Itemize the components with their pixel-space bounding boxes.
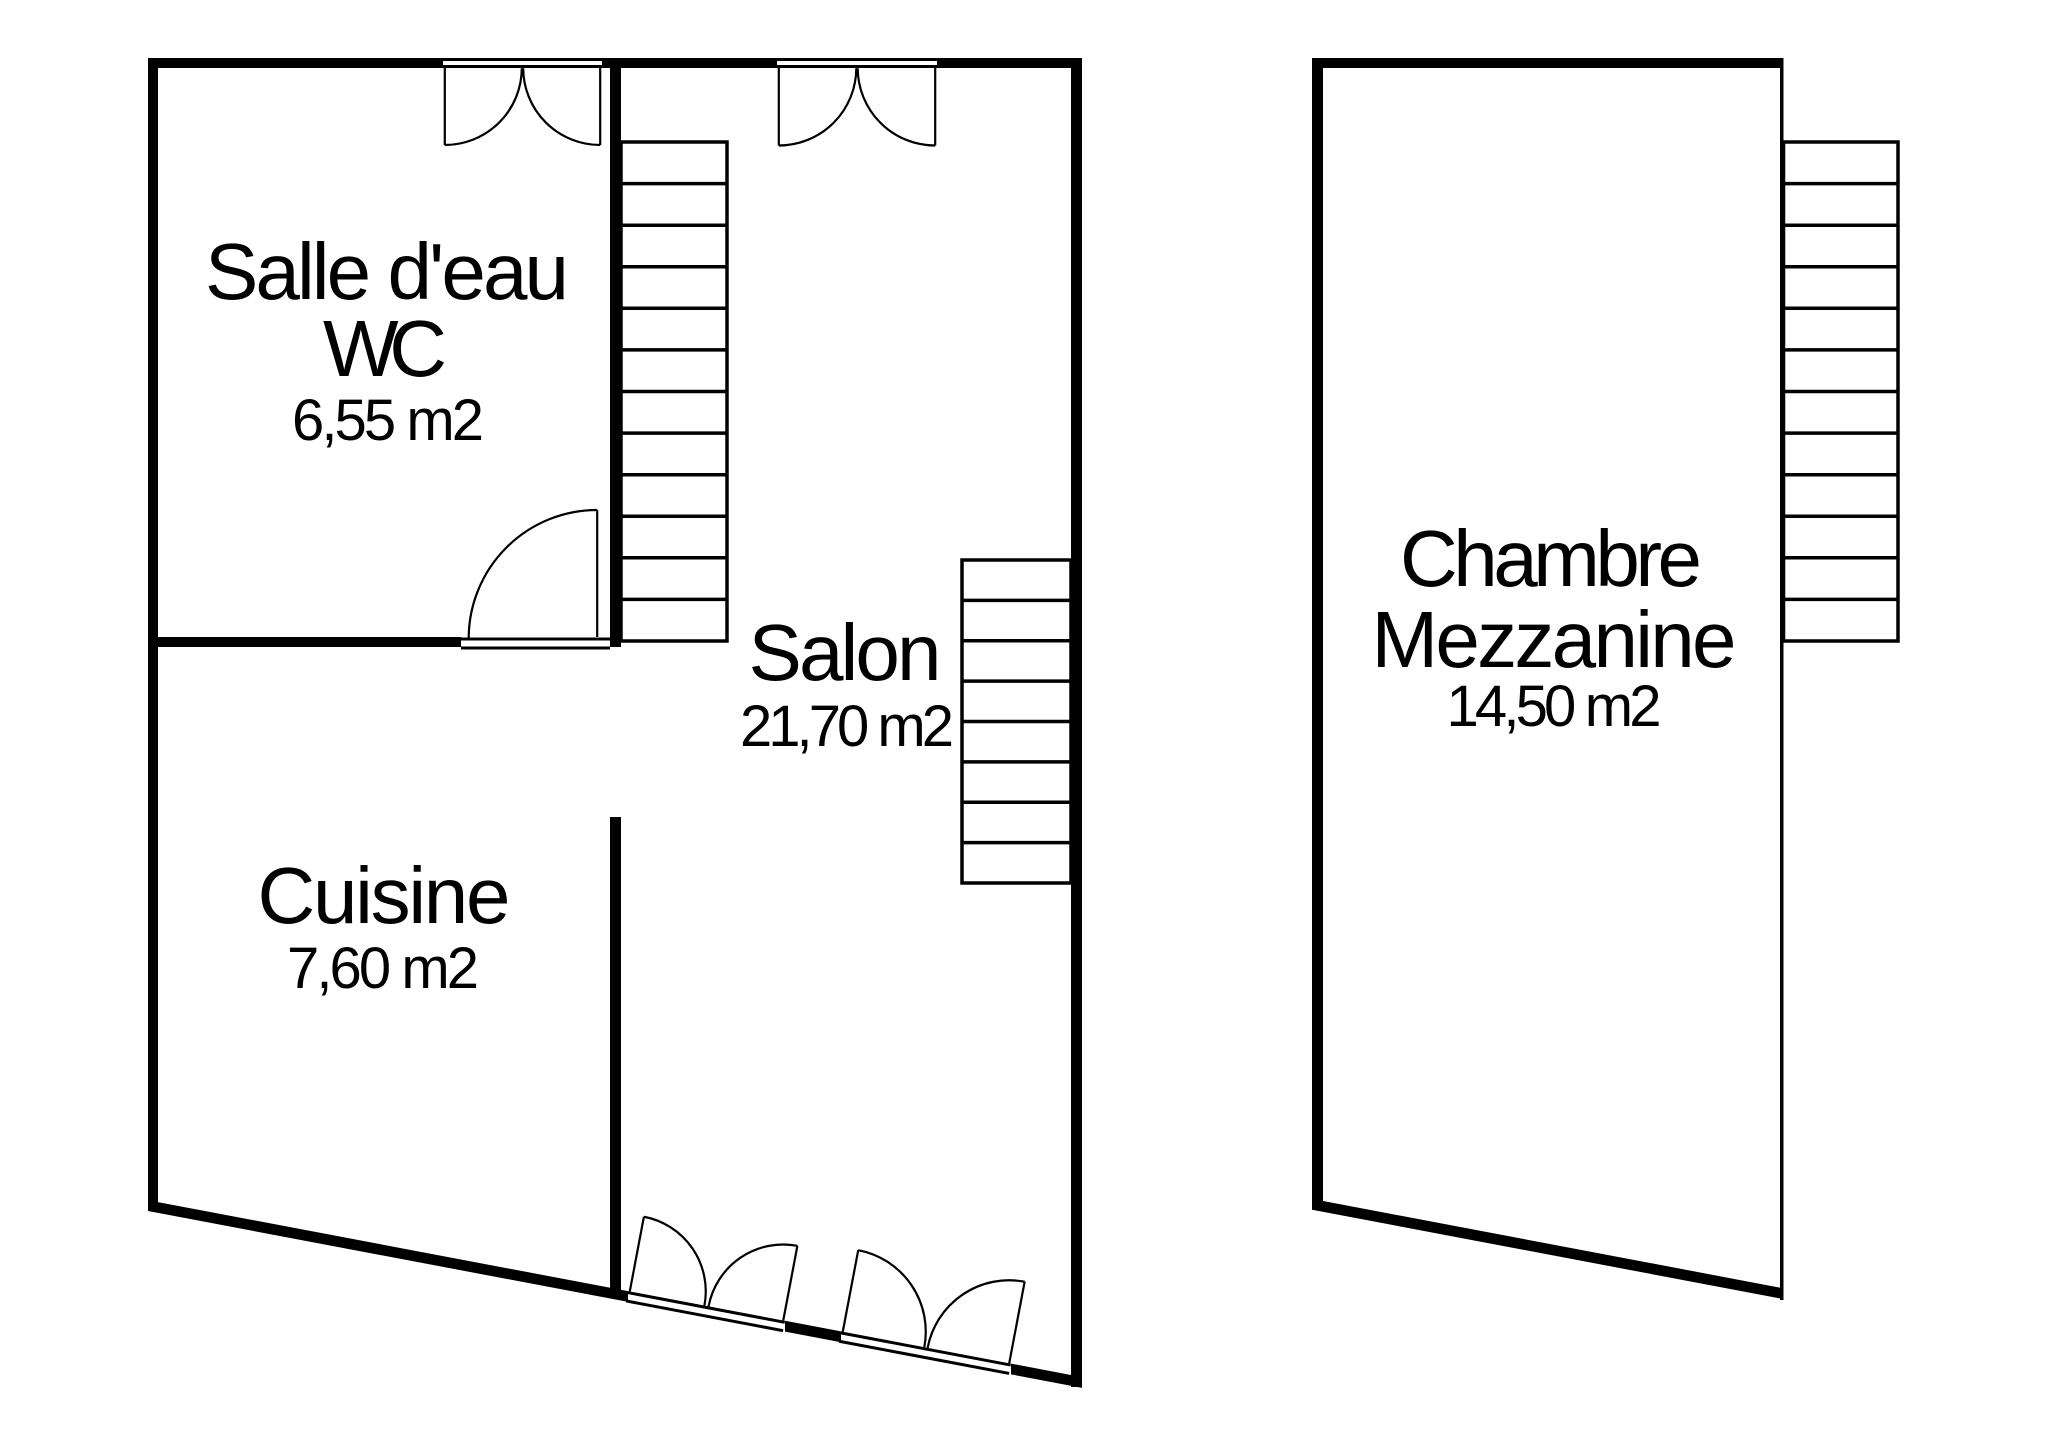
- svg-text:Mezzanine: Mezzanine: [1372, 595, 1737, 684]
- svg-text:Cuisine: Cuisine: [258, 851, 511, 940]
- svg-text:7,60 m2: 7,60 m2: [287, 936, 479, 1001]
- svg-text:Chambre: Chambre: [1400, 514, 1702, 603]
- svg-text:6,55 m2: 6,55 m2: [292, 388, 484, 453]
- svg-text:WC: WC: [323, 304, 447, 393]
- svg-text:Salle d'eau: Salle d'eau: [205, 227, 569, 316]
- svg-text:Salon: Salon: [749, 608, 942, 697]
- svg-text:21,70 m2: 21,70 m2: [740, 694, 954, 759]
- svg-text:14,50 m2: 14,50 m2: [1447, 674, 1662, 739]
